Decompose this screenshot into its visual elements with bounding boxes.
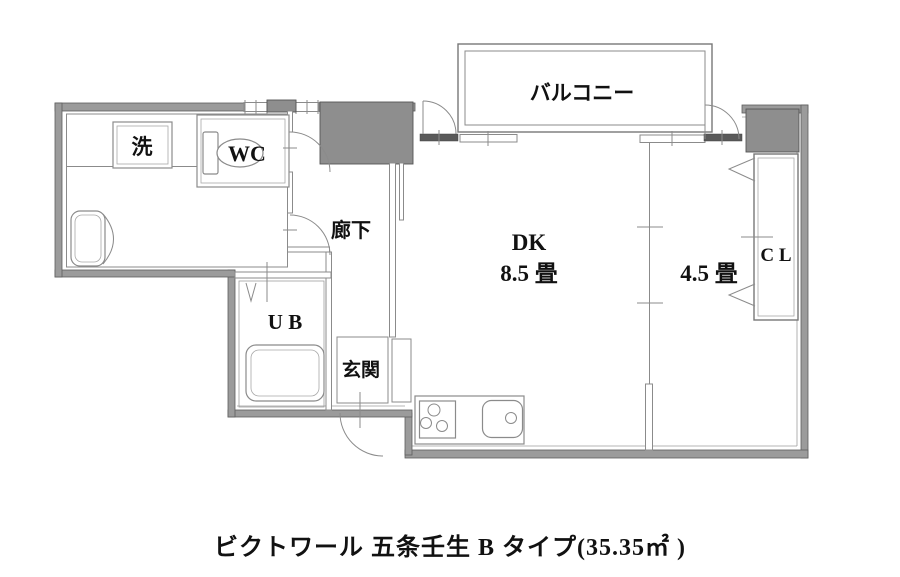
door-arc-dk	[423, 101, 456, 134]
stove-icon	[420, 401, 456, 438]
wall-bottom-left	[228, 410, 412, 417]
entrance: 玄関	[337, 337, 411, 456]
toilet-tank-icon	[203, 132, 218, 174]
balcony-label: バルコニー	[530, 81, 635, 105]
wall-step	[405, 413, 412, 455]
wc-label: WC	[228, 141, 266, 166]
wall-washroom-bottom	[55, 270, 235, 277]
wc-room: WC	[197, 115, 330, 187]
wall-right	[801, 105, 808, 458]
pillar-top-small	[267, 100, 296, 112]
plan-caption: ビクトワール 五条壬生 B タイプ(35.35㎡ )	[0, 527, 900, 562]
floor-plan: バルコニー WC	[0, 0, 900, 520]
closet-label: C L	[760, 245, 791, 266]
entrance-label: 玄関	[342, 358, 380, 381]
door-threshold-room45	[704, 134, 742, 141]
bathtub-icon	[246, 345, 324, 401]
dk-size-label: 8.5 畳	[500, 261, 558, 286]
floor-plan-page: バルコニー WC	[0, 0, 900, 577]
closet: C L	[729, 154, 798, 320]
ub-top-wall	[235, 272, 331, 278]
hallway-label: 廊下	[331, 218, 371, 242]
laundry-label: 洗	[132, 135, 153, 159]
vanity-basin-icon	[71, 211, 105, 266]
dk-west-wall	[390, 163, 396, 337]
wall-left-lower	[228, 270, 235, 417]
room45-label: 4.5 畳	[680, 261, 738, 286]
ub-shower-mark	[246, 283, 256, 301]
unit-bath: U B	[239, 262, 324, 407]
closet-folding-door-mark	[729, 158, 755, 181]
hall-wall-jog	[288, 247, 330, 252]
wall-bottom	[405, 450, 808, 458]
wall-left	[55, 103, 62, 277]
kitchen	[415, 396, 524, 444]
dk-west-wall-2	[400, 163, 404, 220]
dk-label: DK	[512, 230, 547, 255]
ub-label: U B	[268, 310, 302, 334]
entrance-door-arc	[340, 413, 383, 456]
shoe-cabinet	[392, 339, 411, 402]
closet-folding-door-mark	[729, 284, 755, 306]
balcony: バルコニー	[458, 44, 712, 132]
partition-wall-lower	[646, 384, 653, 450]
pipe-shaft-block	[320, 102, 413, 164]
corner-pillar-block	[746, 109, 799, 152]
